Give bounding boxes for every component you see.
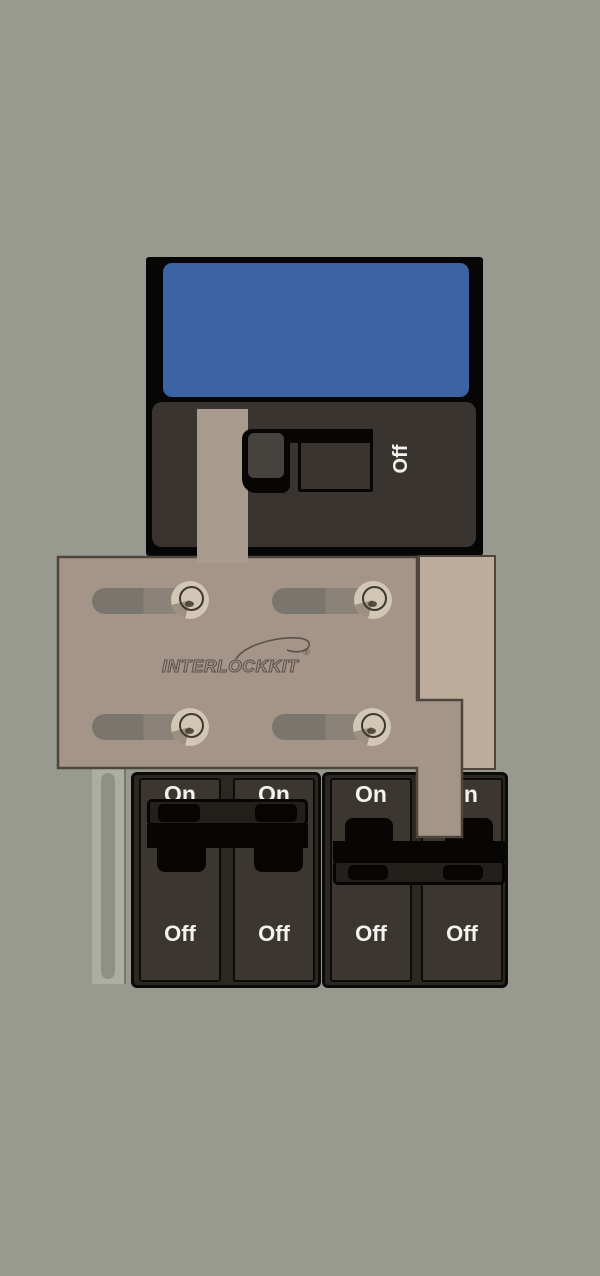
- tie-handle-left-leg-1: [157, 847, 206, 872]
- panel-illustration: Off On On On On Off Off Off Off: [0, 0, 600, 1276]
- tie-handle-right-body: [333, 841, 505, 862]
- main-breaker-switch[interactable]: [242, 429, 290, 493]
- mounting-screw: [353, 708, 391, 746]
- main-breaker-off-label: Off: [378, 434, 424, 484]
- screw-head-icon: [362, 586, 387, 611]
- brand-logo: INTERLOCKKIT ®: [160, 632, 322, 682]
- switch-slot-outline: [298, 439, 373, 492]
- screw-head-icon: [179, 713, 204, 738]
- mounting-screw: [171, 581, 209, 619]
- screw-head-icon: [361, 713, 386, 738]
- registered-mark: ®: [303, 647, 310, 657]
- switch-grip: [248, 433, 284, 478]
- main-breaker-label-panel: [163, 263, 469, 397]
- tie-handle-right-window-2: [443, 865, 483, 880]
- tie-handle-right-window-1: [348, 865, 388, 880]
- interlock-slider-strip[interactable]: [197, 409, 248, 563]
- mounting-screw: [354, 581, 392, 619]
- screw-head-icon: [179, 586, 204, 611]
- breaker-4-off-label: Off: [421, 919, 503, 949]
- brand-logo-text: INTERLOCKKIT: [162, 656, 299, 676]
- tie-handle-left-leg-2: [254, 847, 303, 872]
- breaker-3-off-label: Off: [330, 919, 412, 949]
- mounting-screw: [171, 708, 209, 746]
- breaker-2-off-label: Off: [233, 919, 315, 949]
- breaker-1-off-label: Off: [139, 919, 221, 949]
